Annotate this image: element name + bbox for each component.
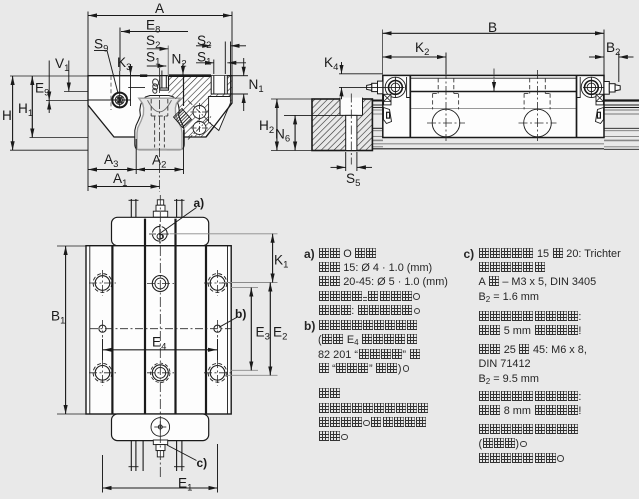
- svg-text:B: B: [488, 20, 497, 35]
- svg-text:H: H: [2, 108, 12, 123]
- svg-text:K4: K4: [324, 55, 338, 73]
- svg-text:N2: N2: [172, 52, 187, 70]
- svg-text:K2: K2: [415, 40, 429, 58]
- svg-text:B2: B2: [606, 40, 620, 58]
- svg-text:V1: V1: [55, 56, 69, 74]
- svg-text:b): b): [235, 307, 246, 321]
- svg-text:c): c): [197, 456, 208, 470]
- svg-text:E9: E9: [35, 81, 49, 99]
- svg-text:S2: S2: [146, 33, 160, 51]
- svg-text:S2: S2: [197, 33, 211, 51]
- svg-text:S9: S9: [94, 37, 108, 55]
- svg-text:a): a): [194, 196, 205, 210]
- svg-text:B1: B1: [51, 309, 65, 327]
- svg-text:A3: A3: [104, 152, 118, 170]
- svg-text:H2: H2: [259, 118, 274, 136]
- svg-text:H1: H1: [18, 101, 33, 119]
- svg-text:K1: K1: [274, 253, 288, 271]
- svg-text:E2: E2: [273, 325, 287, 343]
- svg-text:E3: E3: [256, 325, 270, 343]
- svg-text:S1: S1: [197, 50, 211, 68]
- svg-text:S1: S1: [146, 50, 160, 68]
- svg-text:K3: K3: [117, 55, 131, 73]
- svg-text:S5: S5: [346, 171, 360, 189]
- svg-text:E1: E1: [178, 476, 192, 494]
- svg-text:N1: N1: [249, 77, 264, 95]
- svg-text:A: A: [155, 1, 165, 16]
